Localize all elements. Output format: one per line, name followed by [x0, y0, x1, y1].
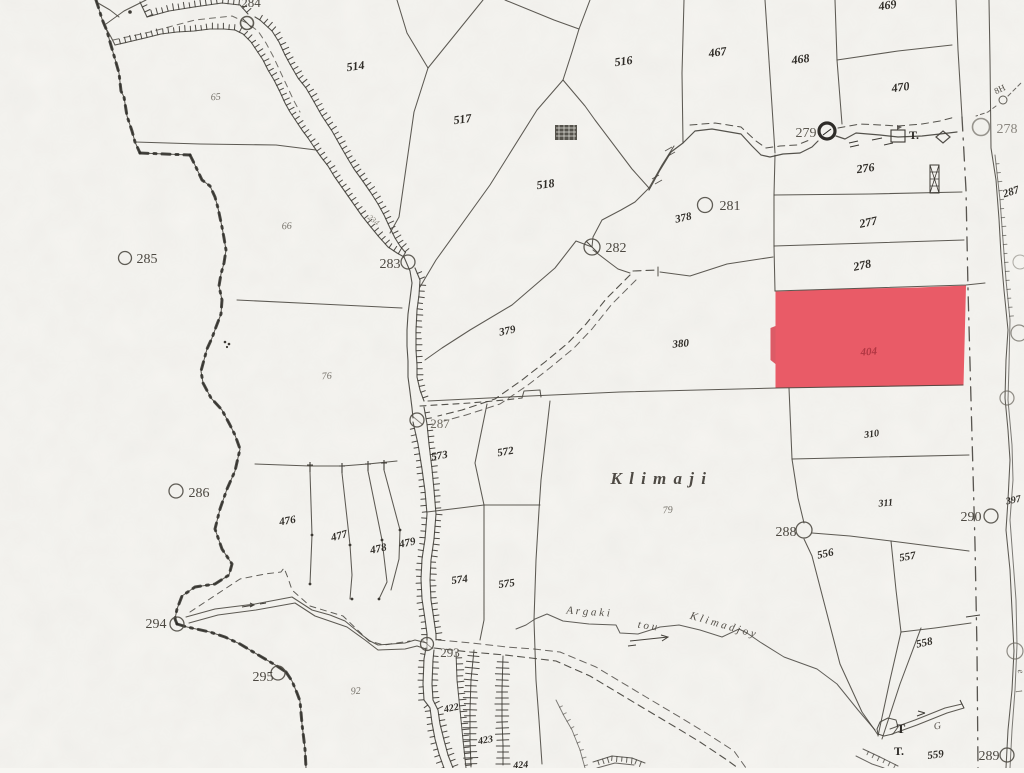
svg-text:295: 295 [253, 670, 274, 685]
svg-text:76: 76 [321, 371, 332, 383]
svg-text:278: 278 [997, 122, 1018, 137]
svg-text:T: T [897, 721, 906, 736]
svg-text:92: 92 [350, 686, 361, 698]
svg-text:79: 79 [662, 505, 673, 517]
svg-text:470: 470 [890, 79, 911, 96]
svg-text:559: 559 [927, 748, 946, 762]
svg-text:517: 517 [453, 111, 474, 128]
svg-text:281: 281 [720, 199, 741, 214]
svg-text:279: 279 [796, 126, 817, 141]
svg-text:284: 284 [241, 0, 261, 10]
svg-text:65: 65 [210, 92, 221, 104]
svg-text:282: 282 [606, 241, 627, 256]
svg-text:380: 380 [671, 337, 690, 351]
svg-text:285: 285 [137, 252, 158, 267]
svg-text:424: 424 [512, 759, 529, 768]
svg-text:276: 276 [855, 160, 876, 177]
svg-text:310: 310 [862, 428, 879, 441]
svg-text:518: 518 [536, 176, 556, 192]
svg-text:311: 311 [877, 497, 893, 509]
svg-text:404: 404 [859, 345, 878, 358]
svg-text:66: 66 [281, 221, 292, 233]
svg-text:290: 290 [961, 510, 982, 525]
svg-text:283: 283 [380, 257, 401, 272]
svg-text:T.: T. [894, 744, 904, 758]
svg-text:514: 514 [346, 58, 366, 74]
svg-text:468: 468 [790, 51, 811, 68]
svg-text:467: 467 [707, 44, 729, 61]
svg-text:288: 288 [776, 525, 797, 540]
svg-text:K l i m a j i: K l i m a j i [610, 469, 708, 488]
svg-text:287: 287 [430, 416, 450, 431]
svg-text:516: 516 [614, 53, 634, 69]
svg-text:574: 574 [451, 573, 470, 587]
svg-text:294: 294 [146, 617, 167, 632]
svg-text:289: 289 [979, 749, 1000, 764]
svg-text:T.: T. [909, 128, 919, 142]
svg-text:293: 293 [440, 645, 460, 660]
svg-text:575: 575 [498, 577, 517, 591]
svg-text:286: 286 [189, 486, 210, 501]
